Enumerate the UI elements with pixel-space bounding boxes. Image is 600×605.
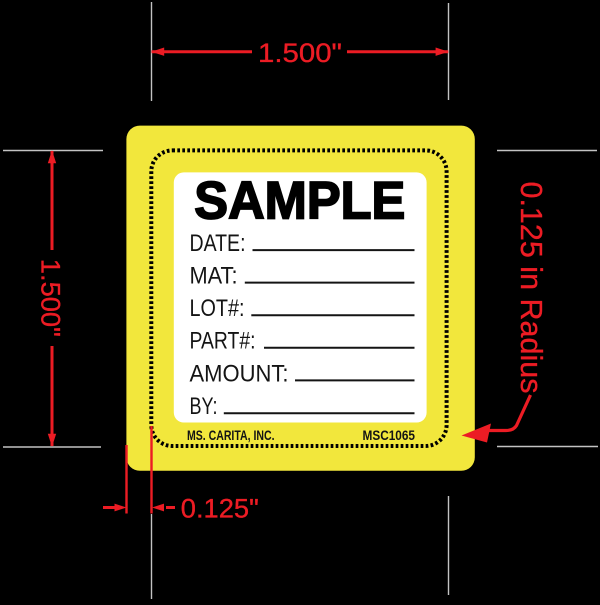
svg-text:0.125 in Radius: 0.125 in Radius	[514, 182, 548, 394]
svg-text:LOT#:: LOT#:	[190, 295, 245, 322]
svg-text:BY:: BY:	[190, 393, 218, 420]
svg-text:PART#:: PART#:	[190, 328, 256, 355]
svg-text:MSC1065: MSC1065	[363, 428, 416, 443]
svg-text:SAMPLE: SAMPLE	[194, 172, 405, 231]
svg-text:MAT:: MAT:	[190, 263, 238, 290]
svg-text:MS. CARITA, INC.: MS. CARITA, INC.	[187, 428, 275, 443]
svg-text:1.500": 1.500"	[36, 259, 66, 337]
svg-text:0.125": 0.125"	[181, 494, 259, 524]
svg-text:1.500": 1.500"	[258, 38, 342, 68]
svg-text:AMOUNT:: AMOUNT:	[190, 360, 289, 387]
svg-text:DATE:: DATE:	[190, 230, 246, 257]
